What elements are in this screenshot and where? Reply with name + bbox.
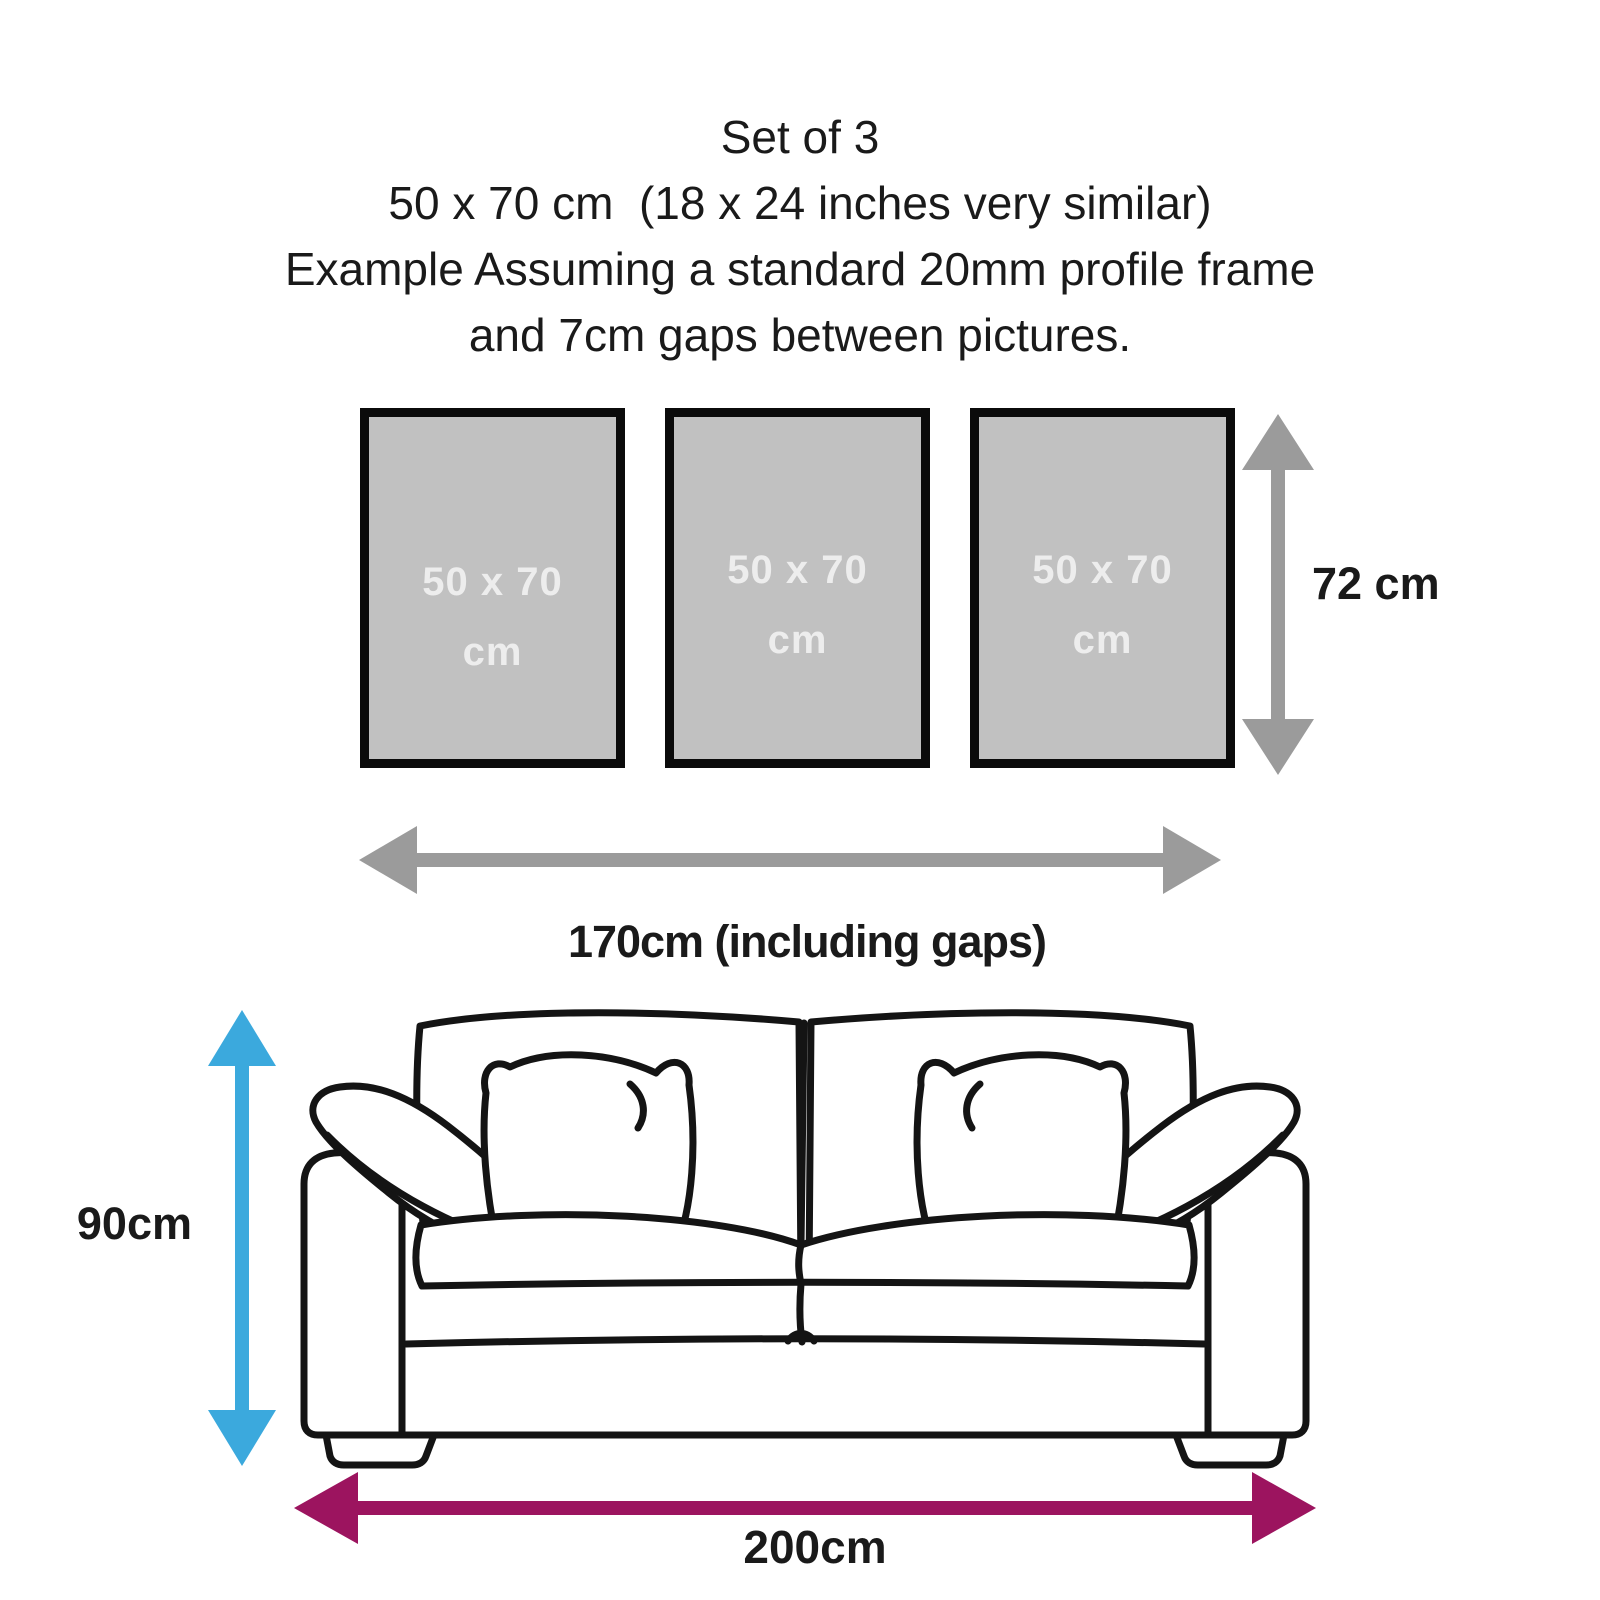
picture-frame-1: 50 x 70 cm: [360, 408, 625, 768]
frames-total-width-label: 170cm (including gaps): [372, 916, 1242, 968]
sofa-center-back-line: [801, 1023, 804, 1245]
arrow-head-left: [359, 826, 417, 894]
arrow-head-down: [1242, 719, 1314, 775]
frame-size-label: 50 x 70 cm: [369, 417, 616, 687]
arrow-head-up: [1242, 414, 1314, 470]
frame-size-label: 50 x 70 cm: [979, 417, 1226, 675]
frame-size-line1: 50 x 70: [369, 547, 616, 617]
title-block: Set of 3 50 x 70 cm (18 x 24 inches very…: [0, 104, 1600, 368]
frame-height-label: 72 cm: [1312, 558, 1440, 610]
arrow-head-left: [294, 1472, 358, 1544]
sofa-illustration: [280, 992, 1330, 1472]
sofa-foot-right: [1176, 1435, 1284, 1465]
frame-size-line2: cm: [979, 605, 1226, 675]
frame-size-line2: cm: [674, 605, 921, 675]
arrow-shaft: [413, 853, 1167, 867]
picture-frame-2: 50 x 70 cm: [665, 408, 930, 768]
frames-width-arrow-icon: [355, 820, 1225, 900]
size-guide-diagram: Set of 3 50 x 70 cm (18 x 24 inches very…: [0, 0, 1600, 1600]
frame-size-line2: cm: [369, 617, 616, 687]
frame-size-line1: 50 x 70: [979, 535, 1226, 605]
picture-frame-3: 50 x 70 cm: [970, 408, 1235, 768]
sofa-foot-left: [326, 1435, 434, 1465]
arrow-shaft: [235, 1062, 249, 1414]
sofa-width-label: 200cm: [380, 1520, 1250, 1574]
title-line-3: Example Assuming a standard 20mm profile…: [0, 236, 1600, 302]
title-line-1: Set of 3: [0, 104, 1600, 170]
arrow-head-right: [1252, 1472, 1316, 1544]
arrow-shaft: [354, 1501, 1256, 1515]
title-line-2: 50 x 70 cm (18 x 24 inches very similar): [0, 170, 1600, 236]
frame-size-line1: 50 x 70: [674, 535, 921, 605]
title-line-4: and 7cm gaps between pictures.: [0, 302, 1600, 368]
sofa-height-label: 90cm: [30, 1198, 192, 1250]
sofa-seat-cushions: [416, 1215, 1194, 1286]
arrow-head-down: [208, 1410, 276, 1466]
arrow-head-up: [208, 1010, 276, 1066]
frame-size-label: 50 x 70 cm: [674, 417, 921, 675]
frame-height-arrow-icon: [1238, 412, 1318, 777]
sofa-center-seat-line: [799, 1245, 802, 1342]
arrow-shaft: [1271, 466, 1285, 723]
sofa-height-arrow-icon: [204, 1008, 280, 1468]
arrow-head-right: [1163, 826, 1221, 894]
